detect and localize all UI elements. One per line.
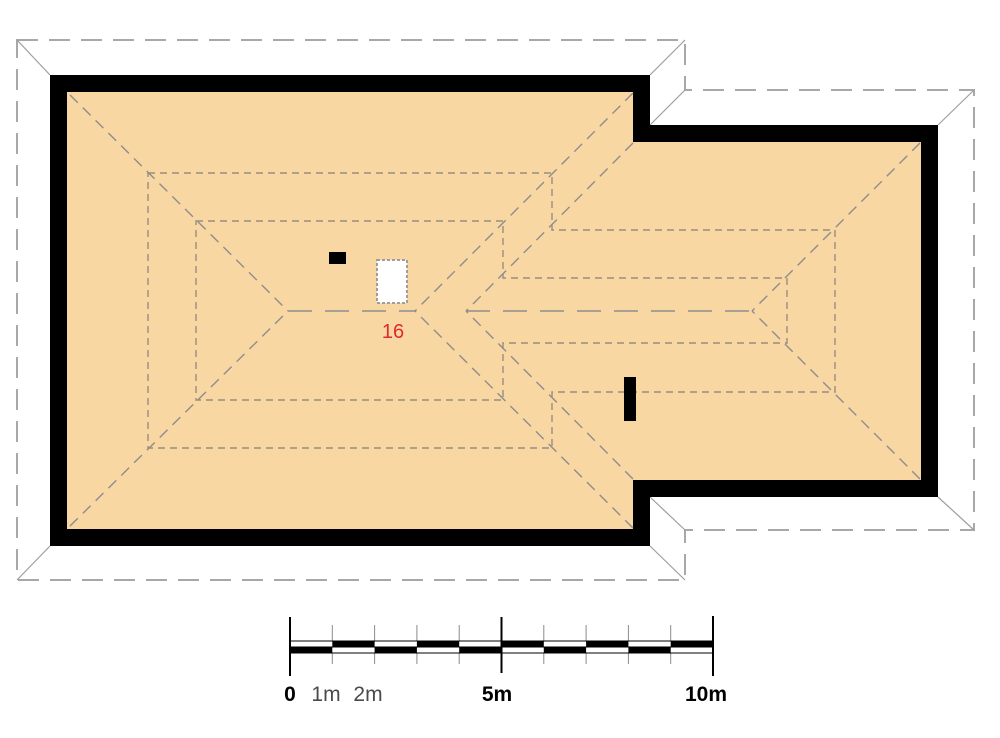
eave-corner-tick: [650, 40, 685, 75]
eave-corner-tick: [938, 90, 974, 125]
scale-bar-segment-bottom: [290, 647, 332, 653]
chimney: [624, 377, 636, 421]
walls-layer: [50, 75, 938, 546]
scale-bar-segment-top: [332, 641, 374, 647]
eave-corner-tick: [650, 497, 685, 530]
scale-bar-segment-top: [671, 641, 713, 647]
scale-label-5m: 5m: [482, 683, 512, 706]
attic-area-label: 16: [382, 321, 404, 343]
eave-corner-tick: [17, 40, 50, 75]
eave-corner-tick: [650, 546, 685, 580]
chimney: [329, 252, 346, 264]
scale-bar-segment-bottom: [628, 647, 670, 653]
scale-bar-segment-bottom: [459, 647, 501, 653]
scale-label-0: 0: [284, 683, 296, 706]
eave-corner-tick: [17, 546, 50, 580]
scale-bar-segment-top: [586, 641, 628, 647]
scale-bar-segment-top: [417, 641, 459, 647]
roof-window: [377, 260, 407, 303]
scale-bar-segment-top: [502, 641, 544, 647]
scale-bar: [290, 616, 713, 676]
scale-bar-segment-bottom: [544, 647, 586, 653]
roof-plan-drawing: 16 0 1m 2m 5m 10m: [0, 0, 1000, 738]
scale-bar-segment-bottom: [375, 647, 417, 653]
eave-corner-tick: [650, 90, 685, 125]
roof-plan-page: 16 0 1m 2m 5m 10m: [0, 0, 1000, 738]
scale-label-1m: 1m: [311, 683, 340, 706]
eave-corner-tick: [938, 497, 974, 530]
scale-label-2m: 2m: [353, 683, 382, 706]
attic-floor-surface: [67, 92, 921, 529]
scale-label-10m: 10m: [685, 683, 727, 706]
